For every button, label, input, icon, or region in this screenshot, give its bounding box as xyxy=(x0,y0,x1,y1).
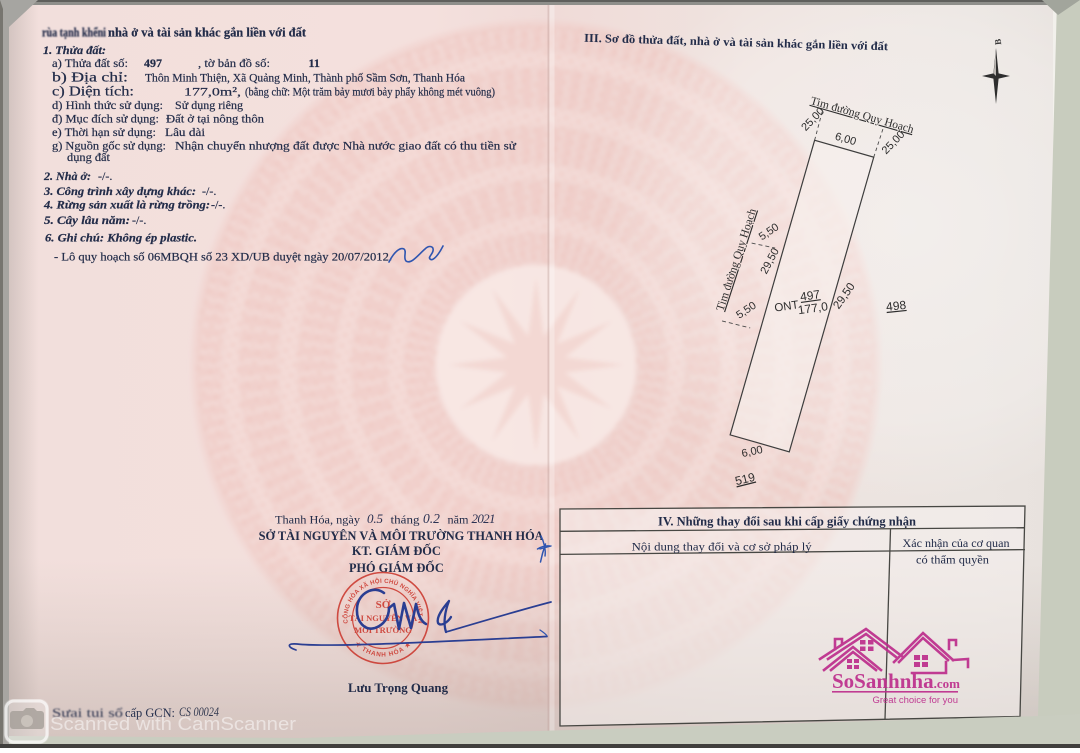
svg-text:-/-.: -/-. xyxy=(202,184,216,198)
svg-text:Đất ở tại nông thôn: Đất ở tại nông thôn xyxy=(166,112,264,126)
svg-text:3. Công trình xây dựng khác:: 3. Công trình xây dựng khác: xyxy=(43,184,196,198)
svg-text:-/-.: -/-. xyxy=(132,213,146,227)
svg-text:Great choice for you: Great choice for you xyxy=(872,695,958,706)
svg-text:Xác nhận của cơ quan: Xác nhận của cơ quan xyxy=(903,536,1010,550)
svg-text:tháng: tháng xyxy=(391,513,420,527)
svg-text:đ) Mục đích sử dụng:: đ) Mục đích sử dụng: xyxy=(52,112,159,126)
svg-text:-/-.: -/-. xyxy=(211,198,225,212)
svg-text:4. Rừng sản xuất là rừng trồng: 4. Rừng sản xuất là rừng trồng: xyxy=(43,198,210,212)
svg-text:6. Ghi chú: Không ép plastic.: 6. Ghi chú: Không ép plastic. xyxy=(45,231,197,245)
svg-text:- Lô quy hoạch số 06MBQH số 23: - Lô quy hoạch số 06MBQH số 23 XD/UB duy… xyxy=(54,250,392,264)
svg-text:IV. Những thay đổi sau khi cấp: IV. Những thay đổi sau khi cấp giấy chứn… xyxy=(658,515,916,529)
svg-text:năm: năm xyxy=(448,513,470,527)
svg-text:Nhận chuyển nhượng đất được Nh: Nhận chuyển nhượng đất được Nhà nước gia… xyxy=(175,139,517,153)
svg-text:Sử dụng riêng: Sử dụng riêng xyxy=(175,98,243,112)
svg-text:B: B xyxy=(993,38,1003,45)
svg-text:11: 11 xyxy=(309,56,320,70)
svg-text:1. Thửa đất:: 1. Thửa đất: xyxy=(43,43,106,57)
svg-text:nhà ở và tài sản khác gắn liền: nhà ở và tài sản khác gắn liền với đất xyxy=(108,25,307,39)
svg-text:-/-.: -/-. xyxy=(98,169,112,183)
svg-text:5. Cây lâu năm:: 5. Cây lâu năm: xyxy=(44,213,130,227)
svg-text:d) Hình thức sử dụng:: d) Hình thức sử dụng: xyxy=(52,98,163,112)
svg-text:, tờ bản đồ số:: , tờ bản đồ số: xyxy=(198,56,270,70)
svg-text:c) Diện tích:: c) Diện tích: xyxy=(52,84,134,99)
svg-text:Thôn Minh Thiện, Xã Quảng Minh: Thôn Minh Thiện, Xã Quảng Minh, Thành ph… xyxy=(145,71,466,85)
svg-text:dụng đất: dụng đất xyxy=(67,150,111,164)
svg-text:KT. GIÁM ĐỐC: KT. GIÁM ĐỐC xyxy=(352,543,441,558)
svg-text:b) Địa chỉ:: b) Địa chỉ: xyxy=(52,70,128,85)
svg-text:Lưu Trọng Quang: Lưu Trọng Quang xyxy=(348,680,448,695)
svg-text:2. Nhà ở:: 2. Nhà ở: xyxy=(43,169,91,183)
svg-text:e) Thời hạn sử dụng:: e) Thời hạn sử dụng: xyxy=(52,125,156,139)
svg-text:497: 497 xyxy=(144,56,162,70)
svg-text:có thẩm quyền: có thẩm quyền xyxy=(916,553,989,567)
svg-text:a) Thửa đất số:: a) Thửa đất số: xyxy=(52,56,128,70)
svg-text:SỞ TÀI NGUYÊN VÀ MÔI TRƯỜNG TH: SỞ TÀI NGUYÊN VÀ MÔI TRƯỜNG THANH HÓA xyxy=(259,529,544,543)
svg-text:rùa tạnh khểni: rùa tạnh khểni xyxy=(42,25,106,39)
svg-text:0.2: 0.2 xyxy=(423,511,440,526)
svg-text:177,0m²,: 177,0m², xyxy=(184,85,241,99)
svg-text:Nội dung thay đổi và cơ sở phá: Nội dung thay đổi và cơ sở pháp lý xyxy=(632,540,812,554)
svg-text:Lâu dài: Lâu dài xyxy=(165,125,206,139)
svg-text:Scanned with CamScanner: Scanned with CamScanner xyxy=(50,714,296,734)
svg-text:(bằng chữ: Một trăm bảy mươi b: (bằng chữ: Một trăm bảy mươi bảy phẩy kh… xyxy=(245,85,495,99)
svg-text:Thanh Hóa, ngày: Thanh Hóa, ngày xyxy=(275,513,360,527)
svg-text:0.5: 0.5 xyxy=(367,511,384,526)
svg-text:498: 498 xyxy=(885,298,907,314)
svg-text:PHÓ GIÁM ĐỐC: PHÓ GIÁM ĐỐC xyxy=(349,560,444,575)
svg-text:2021: 2021 xyxy=(472,511,496,526)
